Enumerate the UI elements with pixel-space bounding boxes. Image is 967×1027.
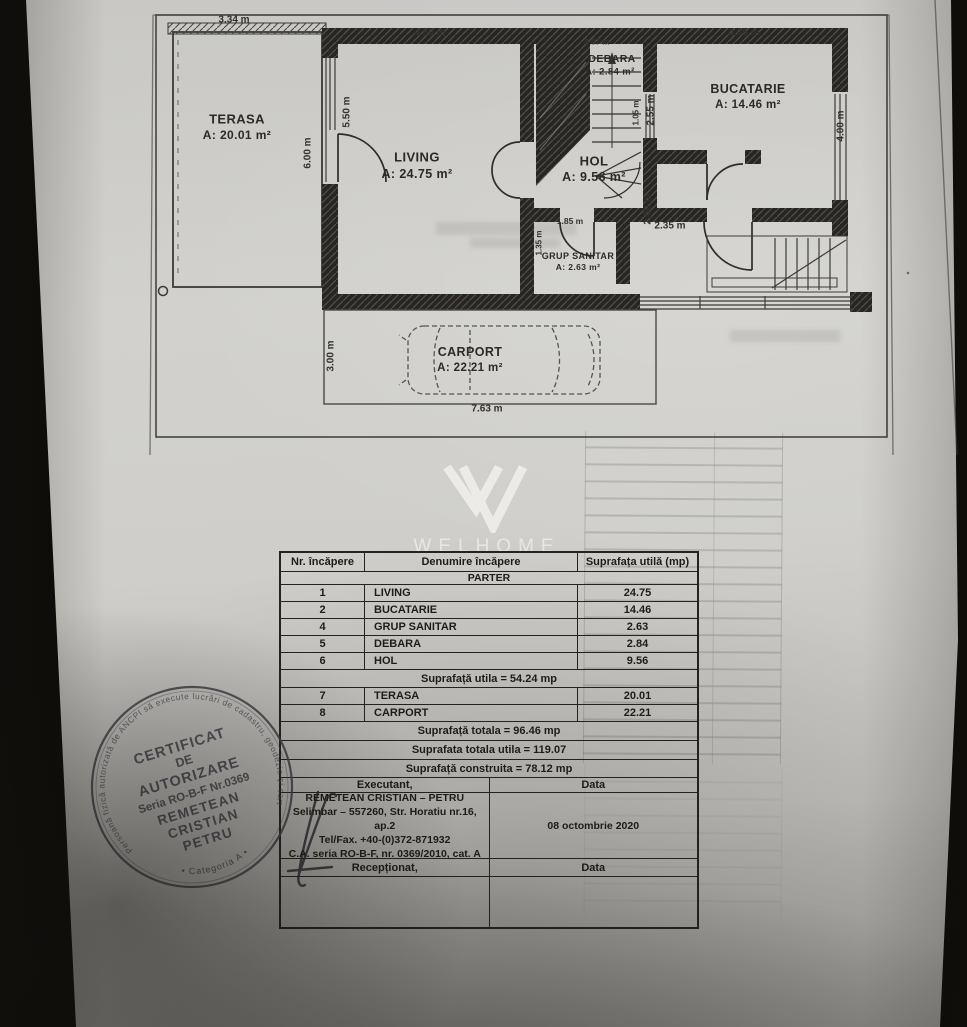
dim-0-97: 0.97 m xyxy=(585,38,610,47)
room-label-terasa: TERASA xyxy=(209,112,265,127)
col-header-denumire: Denumire încăpere xyxy=(365,553,578,571)
cell-name: GRUP SANITAR xyxy=(365,619,578,635)
subtotal-row: Suprafață utila = 54.24 mp xyxy=(281,670,697,688)
scanned-document: TERASA A: 20.01 m² LIVING A: 24.75 m² HO… xyxy=(0,0,967,1027)
cell-nr: 2 xyxy=(281,602,365,618)
total-label: Suprafata totala utila = 119.07 xyxy=(281,741,697,759)
room-label-debara: DEBARA xyxy=(588,53,635,65)
dim-1-85: 1.85 m xyxy=(557,216,583,226)
data-label: Data xyxy=(490,778,698,792)
cell-name: BUCATARIE xyxy=(365,602,578,618)
room-label-grup-sanitar: GRUP SANITAR xyxy=(542,251,614,261)
executant-header-row: Executant, Data xyxy=(281,778,697,793)
room-area-debara: A: 2.84 m² xyxy=(585,67,634,78)
cell-name: CARPORT xyxy=(365,705,578,721)
authorization-stamp: Persoană fizică autorizată de ANCPI să e… xyxy=(57,652,337,932)
welhome-logo-icon xyxy=(437,463,533,533)
dim-4-50: 4.50 m xyxy=(414,28,445,39)
room-area-living: A: 24.75 m² xyxy=(381,167,452,181)
room-area-grup-sanitar: A: 2.63 m² xyxy=(556,262,601,272)
room-area-hol: A: 9.56 m² xyxy=(562,170,626,184)
cell-name: TERASA xyxy=(365,688,578,704)
floor-plan-drawing xyxy=(0,0,967,460)
room-area-carport: A: 22.21 m² xyxy=(437,362,503,374)
empty-row xyxy=(281,877,697,927)
date-value: 08 octombrie 2020 xyxy=(490,793,698,858)
cell-name: DEBARA xyxy=(365,636,578,652)
table-row: 7 TERASA 20.01 xyxy=(281,688,697,705)
dim-4-05: 4.05 m xyxy=(728,28,759,39)
room-area-terasa: A: 20.01 m² xyxy=(203,128,271,142)
cell-name: LIVING xyxy=(365,585,578,601)
dim-7-63: 7.63 m xyxy=(471,404,502,415)
cell-nr: 1 xyxy=(281,585,365,601)
room-label-living: LIVING xyxy=(394,150,440,165)
data-label: Data xyxy=(490,859,698,876)
terrace-outline xyxy=(159,23,327,296)
cell-area: 2.63 xyxy=(578,619,697,635)
dim-4-00: 4.00 m xyxy=(836,110,847,141)
table-row: 5 DEBARA 2.84 xyxy=(281,636,697,653)
cell-area: 2.84 xyxy=(578,636,697,652)
total-label: Suprafață totala = 96.46 mp xyxy=(281,722,697,740)
dim-5-50: 5.50 m xyxy=(342,96,353,127)
car-icon xyxy=(399,326,600,394)
table-row: 6 HOL 9.56 xyxy=(281,653,697,670)
total-label: Suprafață construita = 78.12 mp xyxy=(281,760,697,777)
cell-area: 24.75 xyxy=(578,585,697,601)
table-header-row: Nr. încăpere Denumire încăpere Suprafața… xyxy=(281,553,697,572)
cell-nr: 4 xyxy=(281,619,365,635)
cell-name: HOL xyxy=(365,653,578,669)
room-label-carport: CARPORT xyxy=(438,345,503,359)
dim-3-34: 3.34 m xyxy=(218,15,249,26)
dim-2-60: 2.60 m xyxy=(643,193,654,224)
receptionat-row: Recepționat, Data xyxy=(281,859,697,877)
cell-area: 9.56 xyxy=(578,653,697,669)
dim-6-00: 6.00 m xyxy=(303,137,314,168)
table-row: 4 GRUP SANITAR 2.63 xyxy=(281,619,697,636)
dim-1-05: 1.05 m xyxy=(632,101,641,126)
dim-3-00: 3.00 m xyxy=(326,340,337,371)
table-row: 1 LIVING 24.75 xyxy=(281,585,697,602)
total-row: Suprafață construita = 78.12 mp xyxy=(281,760,697,778)
cell-nr: 5 xyxy=(281,636,365,652)
room-label-bucatarie: BUCATARIE xyxy=(710,82,785,96)
section-label: PARTER xyxy=(281,572,697,584)
dim-1-35: 1.35 m xyxy=(535,231,544,256)
table-row: 2 BUCATARIE 14.46 xyxy=(281,602,697,619)
room-label-hol: HOL xyxy=(580,154,609,169)
room-area-bucatarie: A: 14.46 m² xyxy=(715,99,781,111)
executant-detail-row: REMETEAN CRISTIAN – PETRU Selimbar – 557… xyxy=(281,793,697,859)
col-header-nr: Nr. încăpere xyxy=(281,553,365,571)
section-row-parter: PARTER xyxy=(281,572,697,585)
dim-2-55: 2.55 m xyxy=(646,94,657,125)
dim-2-35: 2.35 m xyxy=(654,221,685,232)
empty-cell xyxy=(490,877,698,927)
table-row: 8 CARPORT 22.21 xyxy=(281,705,697,722)
total-row: Suprafață totala = 96.46 mp xyxy=(281,722,697,741)
areas-table: Nr. încăpere Denumire încăpere Suprafața… xyxy=(279,551,699,929)
cell-area: 20.01 xyxy=(578,688,697,704)
cell-area: 22.21 xyxy=(578,705,697,721)
cell-area: 14.46 xyxy=(578,602,697,618)
signature xyxy=(288,792,336,886)
subtotal-label: Suprafață utila = 54.24 mp xyxy=(281,670,697,687)
total-row: Suprafata totala utila = 119.07 xyxy=(281,741,697,760)
col-header-suprafata: Suprafața utilă (mp) xyxy=(578,553,697,571)
